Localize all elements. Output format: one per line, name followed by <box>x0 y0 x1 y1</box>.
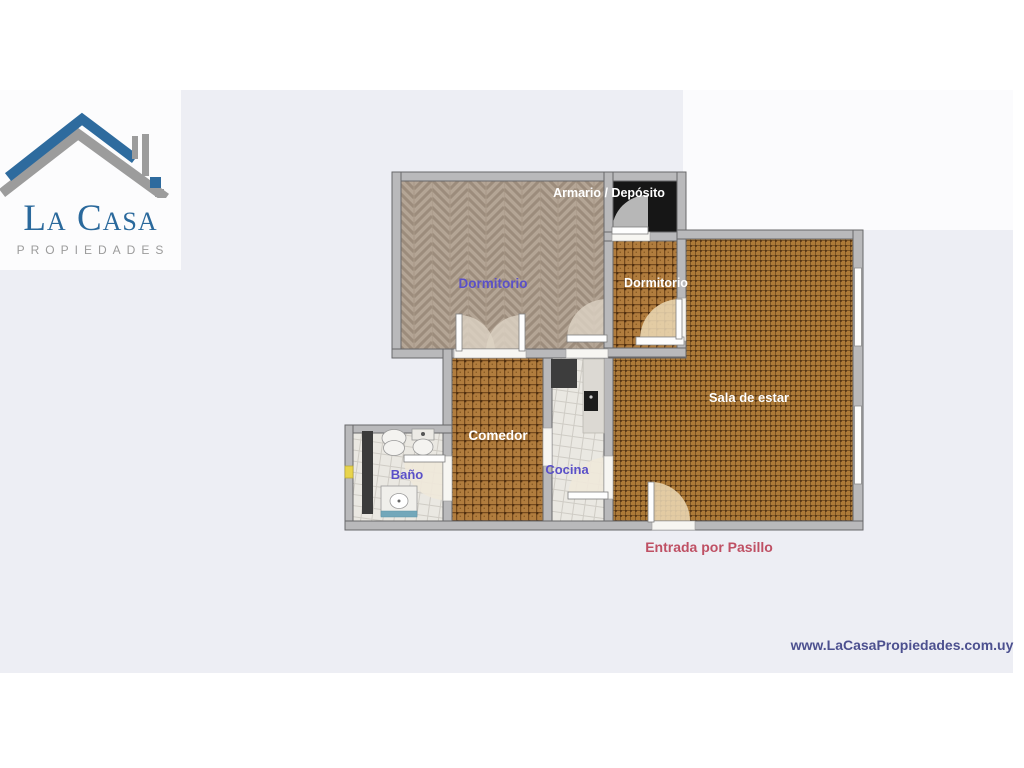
label-dormitorio-2: Dormitorio <box>624 276 688 290</box>
entrance-note: Entrada por Pasillo <box>645 539 773 555</box>
dormitorio-1-door-opening <box>566 349 608 358</box>
label-sala-de-estar: Sala de estar <box>709 390 789 405</box>
double-door-opening <box>454 349 526 358</box>
bano-window <box>345 466 353 478</box>
logo-title: La Casa <box>0 200 181 237</box>
roof-icon <box>0 90 181 198</box>
logo-subtitle: PROPIEDADES <box>0 243 181 257</box>
backdrop-patch <box>683 90 1013 230</box>
sala-window-upper <box>855 268 862 346</box>
company-logo: La Casa PROPIEDADES <box>0 90 181 270</box>
label-comedor: Comedor <box>468 428 528 443</box>
label-cocina: Cocina <box>545 462 589 477</box>
bano-door-opening <box>443 456 452 501</box>
page: Armario / Depósito Dormitorio Dormitorio… <box>0 0 1024 768</box>
sala-window-lower <box>855 406 862 484</box>
label-bano: Baño <box>391 467 424 482</box>
entrance-door-opening <box>652 521 695 530</box>
website-url: www.LaCasaPropiedades.com.uy <box>790 637 1014 653</box>
label-dormitorio-1: Dormitorio <box>459 276 528 291</box>
label-armario-deposito: Armario / Depósito <box>553 186 665 200</box>
comedor-cocina-opening <box>543 428 552 466</box>
